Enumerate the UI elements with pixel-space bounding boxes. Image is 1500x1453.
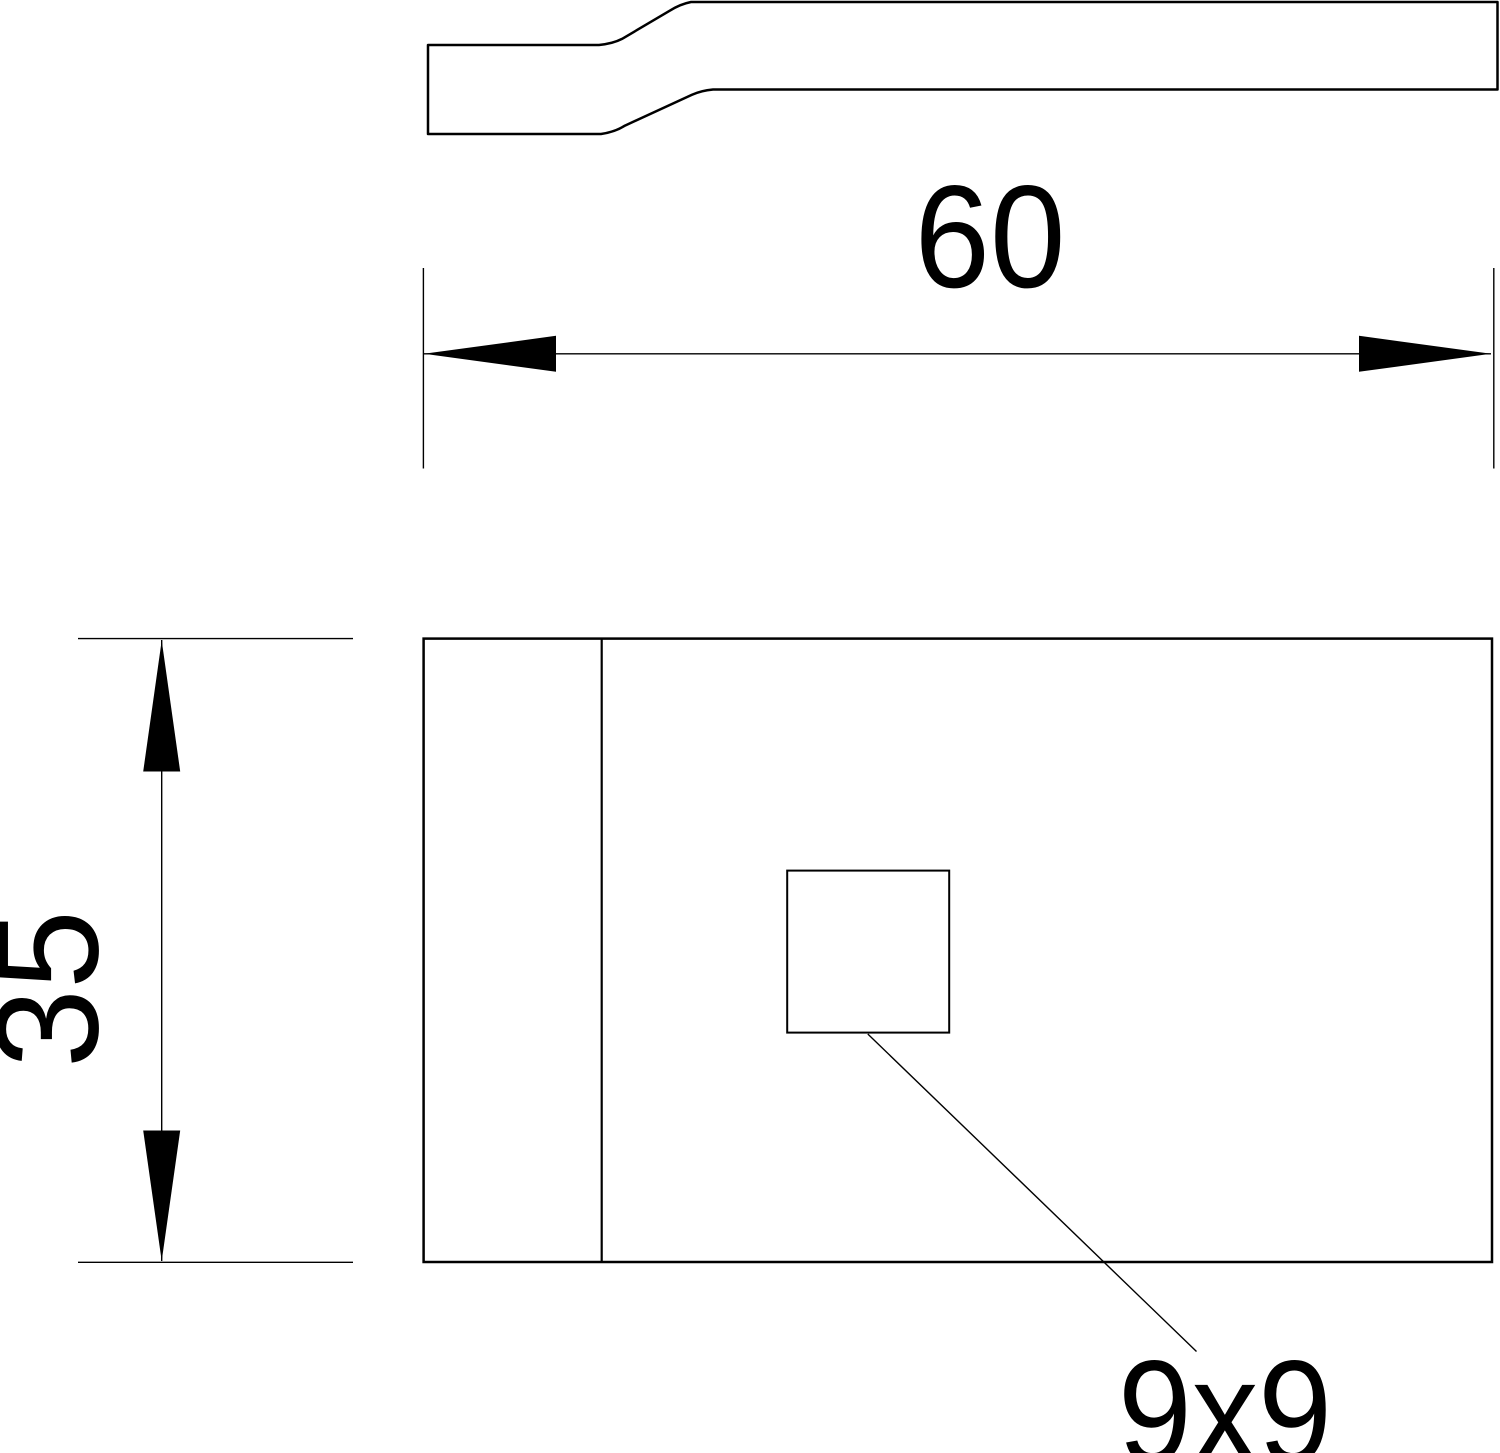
- svg-text:60: 60: [915, 155, 1066, 318]
- svg-text:9x9: 9x9: [1118, 1330, 1332, 1453]
- svg-text:35: 35: [0, 910, 129, 1068]
